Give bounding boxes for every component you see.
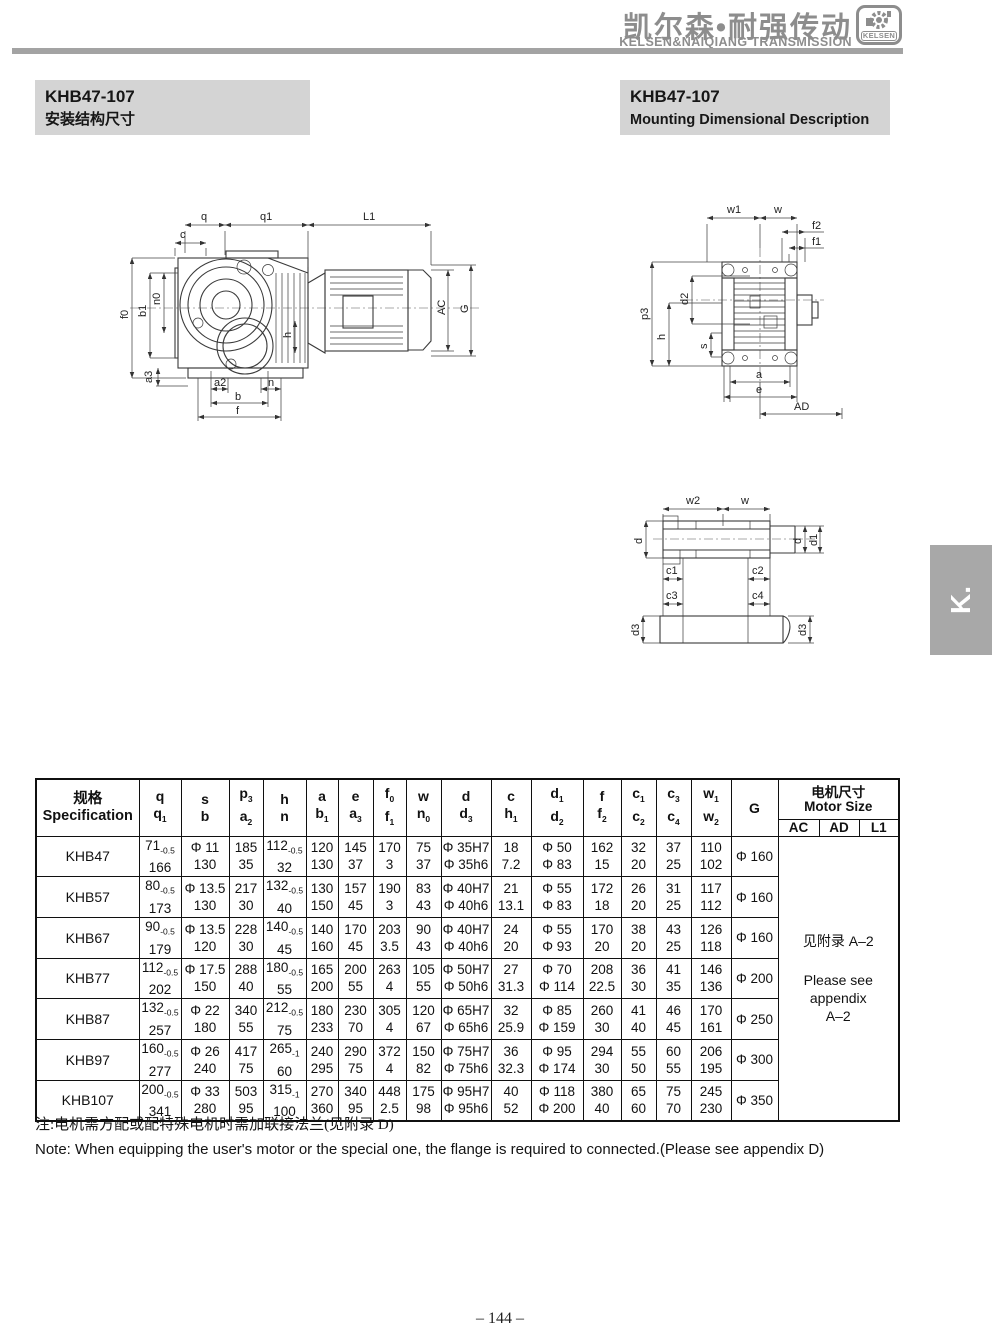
appendix-note-en: Please seeappendixA–2: [779, 971, 899, 1025]
dim-cell: 240295: [306, 1039, 338, 1080]
svg-text:AC: AC: [436, 300, 448, 315]
dim-cell: 140-0.545: [263, 917, 306, 958]
svg-text:h: h: [282, 332, 294, 338]
dim-cell: Φ 40H7Φ 40h6: [441, 877, 491, 918]
dim-cell: 6560: [621, 1080, 656, 1121]
dim-cell: 146136: [691, 958, 731, 999]
dim-cell: 20055: [338, 958, 373, 999]
g-cell: Φ 160: [731, 917, 778, 958]
dim-cell: 3220: [621, 836, 656, 877]
dim-header: ff2: [583, 779, 621, 836]
motor-subcol-header: L1: [859, 819, 899, 836]
dim-cell: 187.2: [491, 836, 531, 877]
svg-text:h: h: [656, 334, 668, 340]
table-row: KHB87132-0.5257Φ 2218034055212-0.5751802…: [36, 999, 899, 1040]
dim-cell: 23070: [338, 999, 373, 1040]
dim-header: ea3: [338, 779, 373, 836]
dim-cell: 20822.5: [583, 958, 621, 999]
svg-text:a: a: [756, 369, 763, 381]
dim-cell: 28840: [229, 958, 263, 999]
svg-text:n: n: [268, 377, 274, 389]
dim-header: dd3: [441, 779, 491, 836]
dim-cell: 29075: [338, 1039, 373, 1080]
dim-header: c1c2: [621, 779, 656, 836]
dim-cell: 4135: [656, 958, 691, 999]
dim-header: f0f1: [373, 779, 406, 836]
dim-cell: Φ 35H7Φ 35h6: [441, 836, 491, 877]
section-tab-label: K.: [945, 586, 977, 614]
g-cell: Φ 200: [731, 958, 778, 999]
dim-cell: 5550: [621, 1039, 656, 1080]
dim-header: ch1: [491, 779, 531, 836]
motor-size-note: 见附录 A–2Please seeappendixA–2: [778, 836, 899, 1121]
dim-cell: 7570: [656, 1080, 691, 1121]
g-cell: Φ 250: [731, 999, 778, 1040]
svg-text:w: w: [740, 495, 749, 507]
dim-cell: 16215: [583, 836, 621, 877]
dim-cell: Φ 55Φ 83: [531, 877, 583, 918]
dim-cell: 4325: [656, 917, 691, 958]
dim-header: ab1: [306, 779, 338, 836]
spec-header: 规格Specification: [36, 779, 139, 836]
svg-text:s: s: [698, 343, 710, 349]
dim-cell: 132-0.540: [263, 877, 306, 918]
dim-cell: Φ 40H7Φ 40h6: [441, 917, 491, 958]
dim-cell: 3632.3: [491, 1039, 531, 1080]
svg-text:c4: c4: [752, 590, 764, 602]
svg-text:a2: a2: [214, 377, 226, 389]
dim-cell: Φ 95Φ 174: [531, 1039, 583, 1080]
table-row: KHB77112-0.5202Φ 17.515028840180-0.55516…: [36, 958, 899, 999]
model-cell: KHB57: [36, 877, 139, 918]
dim-cell: 110102: [691, 836, 731, 877]
dim-cell: Φ 85Φ 159: [531, 999, 583, 1040]
dim-cell: 2420: [491, 917, 531, 958]
dim-cell: 90-0.5179: [139, 917, 181, 958]
svg-text:d3: d3: [797, 624, 809, 636]
svg-text:w2: w2: [685, 495, 700, 507]
model-cell: KHB97: [36, 1039, 139, 1080]
model-cell: KHB87: [36, 999, 139, 1040]
dim-cell: 26030: [583, 999, 621, 1040]
note-english: Note: When equipping the user's motor or…: [35, 1141, 824, 1158]
dim-cell: Φ 55Φ 93: [531, 917, 583, 958]
dimensions-table: 规格Specificationqq1sbp3a2hnab1ea3f0f1wn0d…: [35, 778, 900, 1122]
dim-cell: Φ 70Φ 114: [531, 958, 583, 999]
svg-text:d: d: [633, 538, 645, 544]
gear-icon: [862, 9, 896, 31]
dim-cell: Φ 65H7Φ 65h6: [441, 999, 491, 1040]
table-row: KHB97160-0.5277Φ 2624041775265-160240295…: [36, 1039, 899, 1080]
title-en-subtitle: Mounting Dimensional Description: [630, 109, 890, 131]
dim-cell: 3054: [373, 999, 406, 1040]
svg-text:d3: d3: [630, 624, 642, 636]
svg-text:w: w: [773, 204, 782, 216]
dim-cell: 130150: [306, 877, 338, 918]
dim-cell: 3630: [621, 958, 656, 999]
dim-cell: 3225.9: [491, 999, 531, 1040]
dim-cell: 71-0.5166: [139, 836, 181, 877]
dim-cell: 132-0.5257: [139, 999, 181, 1040]
svg-text:AD: AD: [794, 401, 809, 413]
motor-subcol-header: AC: [778, 819, 819, 836]
motor-size-title-cn: 电机尺寸: [779, 785, 899, 800]
dim-cell: 17598: [406, 1080, 441, 1121]
dim-cell: Φ 50Φ 83: [531, 836, 583, 877]
dim-cell: 2113.1: [491, 877, 531, 918]
svg-text:d: d: [792, 538, 804, 544]
dim-cell: 12067: [406, 999, 441, 1040]
svg-text:n0: n0: [151, 293, 163, 305]
side-view-drawing: q q1 L1 c f0 b1 n0 a3 a2 n b f h AC G: [118, 193, 588, 441]
dim-header: qq1: [139, 779, 181, 836]
brand-english: KELSEN&NAIQIANG TRANSMISSION: [619, 35, 852, 49]
dim-cell: 4140: [621, 999, 656, 1040]
dim-cell: Φ 22180: [181, 999, 229, 1040]
dim-cell: 38040: [583, 1080, 621, 1121]
title-cn-subtitle: 安装结构尺寸: [45, 109, 310, 131]
appendix-note-cn: 见附录 A–2: [779, 931, 899, 951]
table-wrap: 规格Specificationqq1sbp3a2hnab1ea3f0f1wn0d…: [35, 778, 900, 1122]
dim-header: w1w2: [691, 779, 731, 836]
svg-text:f1: f1: [812, 236, 821, 248]
dim-cell: Φ 17.5150: [181, 958, 229, 999]
svg-text:a3: a3: [143, 371, 155, 383]
dim-cell: 160-0.5277: [139, 1039, 181, 1080]
dim-cell: 165200: [306, 958, 338, 999]
svg-text:c: c: [180, 229, 186, 241]
svg-text:f0: f0: [119, 310, 131, 319]
dim-cell: 120130: [306, 836, 338, 877]
svg-text:w1: w1: [726, 204, 741, 216]
dim-cell: 245230: [691, 1080, 731, 1121]
svg-text:d2: d2: [679, 293, 691, 305]
dim-cell: 4645: [656, 999, 691, 1040]
dim-cell: 3125: [656, 877, 691, 918]
dim-cell: 1903: [373, 877, 406, 918]
model-range-title: KHB47-107: [45, 85, 310, 109]
model-cell: KHB77: [36, 958, 139, 999]
dim-cell: 6055: [656, 1039, 691, 1080]
dim-header: d1d2: [531, 779, 583, 836]
dim-cell: 22830: [229, 917, 263, 958]
dim-header: p3a2: [229, 779, 263, 836]
svg-text:c1: c1: [666, 565, 678, 577]
dim-cell: 18535: [229, 836, 263, 877]
table-row: KHB4771-0.5166Φ 1113018535112-0.53212013…: [36, 836, 899, 877]
table-row: KHB6790-0.5179Φ 13.512022830140-0.545140…: [36, 917, 899, 958]
dim-cell: Φ 118Φ 200: [531, 1080, 583, 1121]
dim-cell: Φ 11130: [181, 836, 229, 877]
dim-cell: 265-160: [263, 1039, 306, 1080]
dim-cell: Φ 50H7Φ 50h6: [441, 958, 491, 999]
dim-cell: 212-0.575: [263, 999, 306, 1040]
dim-cell: 117112: [691, 877, 731, 918]
motor-subcol-header: AD: [819, 819, 859, 836]
title-block-en: KHB47-107 Mounting Dimensional Descripti…: [620, 80, 890, 135]
end-view-drawing: w1 w f2 f1 p3 h d2 s a e AD: [612, 190, 902, 438]
dim-cell: 140160: [306, 917, 338, 958]
dim-cell: 10555: [406, 958, 441, 999]
dim-cell: Φ 13.5120: [181, 917, 229, 958]
dim-cell: 2620: [621, 877, 656, 918]
svg-text:c3: c3: [666, 590, 678, 602]
dim-cell: 180-0.555: [263, 958, 306, 999]
dim-header: hn: [263, 779, 306, 836]
dim-cell: 80-0.5173: [139, 877, 181, 918]
shaft-view-drawing: w2 w d d d1 c1 c2 c3 c4 d3 d3: [598, 476, 898, 664]
dim-cell: 41775: [229, 1039, 263, 1080]
g-cell: Φ 300: [731, 1039, 778, 1080]
dim-cell: 3820: [621, 917, 656, 958]
dim-cell: 15745: [338, 877, 373, 918]
page-number: – 144 –: [0, 1310, 1000, 1328]
g-cell: Φ 160: [731, 877, 778, 918]
dim-cell: 2634: [373, 958, 406, 999]
dim-header: wn0: [406, 779, 441, 836]
dim-cell: Φ 13.5130: [181, 877, 229, 918]
dim-cell: Φ 95H7Φ 95h6: [441, 1080, 491, 1121]
svg-text:q1: q1: [260, 211, 272, 223]
dim-cell: 126118: [691, 917, 731, 958]
motor-size-header: 电机尺寸Motor Size: [778, 779, 899, 819]
svg-text:q: q: [201, 211, 207, 223]
dim-cell: 29430: [583, 1039, 621, 1080]
dim-cell: 17045: [338, 917, 373, 958]
dim-cell: 2731.3: [491, 958, 531, 999]
dim-header: c3c4: [656, 779, 691, 836]
dim-cell: 112-0.5202: [139, 958, 181, 999]
model-cell: KHB47: [36, 836, 139, 877]
dim-cell: 112-0.532: [263, 836, 306, 877]
svg-text:f: f: [236, 405, 240, 417]
dim-cell: 206195: [691, 1039, 731, 1080]
header-rule: [12, 48, 903, 54]
dim-cell: Φ 26240: [181, 1039, 229, 1080]
model-cell: KHB67: [36, 917, 139, 958]
g-cell: Φ 350: [731, 1080, 778, 1121]
dim-cell: 7537: [406, 836, 441, 877]
dim-cell: 3725: [656, 836, 691, 877]
dim-cell: 3724: [373, 1039, 406, 1080]
svg-text:p3: p3: [639, 308, 651, 320]
dim-cell: 17020: [583, 917, 621, 958]
dim-cell: 8343: [406, 877, 441, 918]
dim-header: sb: [181, 779, 229, 836]
svg-text:b: b: [235, 391, 241, 403]
svg-text:G: G: [459, 304, 471, 313]
svg-text:b1: b1: [137, 305, 149, 317]
kelsen-logo: KELSEN: [856, 5, 902, 45]
svg-text:c2: c2: [752, 565, 764, 577]
note-chinese: 注:电机需方配或配特殊电机时需加联接法兰(见附录 D): [35, 1113, 394, 1134]
dim-cell: 34055: [229, 999, 263, 1040]
section-tab-k: K.: [930, 545, 992, 655]
motor-size-title-en: Motor Size: [779, 800, 899, 814]
dim-cell: 180233: [306, 999, 338, 1040]
dim-cell: 2033.5: [373, 917, 406, 958]
svg-text:f2: f2: [812, 220, 821, 232]
dim-cell: Φ 75H7Φ 75h6: [441, 1039, 491, 1080]
g-cell: Φ 160: [731, 836, 778, 877]
svg-text:d1: d1: [808, 534, 820, 546]
dim-cell: 9043: [406, 917, 441, 958]
dim-cell: 1703: [373, 836, 406, 877]
dim-cell: 15082: [406, 1039, 441, 1080]
title-block-cn: KHB47-107 安装结构尺寸: [35, 80, 310, 135]
dim-cell: 21730: [229, 877, 263, 918]
svg-text:L1: L1: [363, 211, 375, 223]
dim-cell: 4052: [491, 1080, 531, 1121]
model-range-title-en: KHB47-107: [630, 85, 890, 109]
g-header: G: [731, 779, 778, 836]
dim-cell: 170161: [691, 999, 731, 1040]
dim-cell: 14537: [338, 836, 373, 877]
svg-text:e: e: [756, 384, 762, 396]
logo-label: KELSEN: [861, 31, 897, 41]
dim-cell: 17218: [583, 877, 621, 918]
table-row: KHB5780-0.5173Φ 13.513021730132-0.540130…: [36, 877, 899, 918]
